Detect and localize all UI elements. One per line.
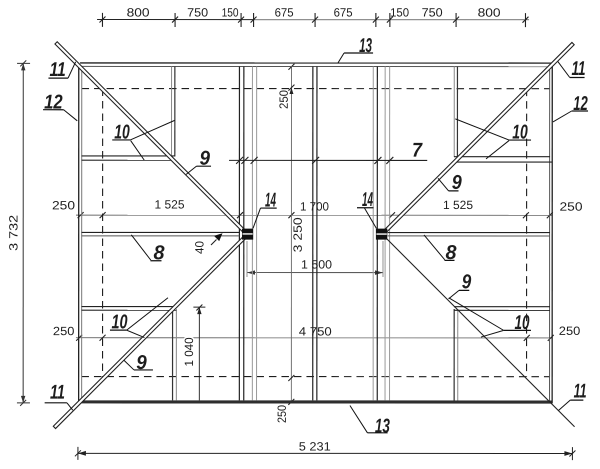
svg-text:4 750: 4 750: [299, 324, 332, 338]
svg-text:11: 11: [50, 59, 66, 81]
svg-text:750: 750: [422, 6, 443, 20]
svg-text:800: 800: [127, 5, 150, 19]
svg-text:40: 40: [192, 241, 206, 254]
svg-text:10: 10: [114, 122, 130, 144]
svg-text:13: 13: [375, 416, 390, 438]
svg-text:9: 9: [462, 271, 472, 293]
svg-text:7: 7: [412, 140, 423, 162]
svg-text:14: 14: [265, 190, 276, 212]
svg-text:8: 8: [153, 242, 165, 264]
svg-text:5 231: 5 231: [299, 439, 331, 453]
svg-text:12: 12: [44, 92, 63, 114]
svg-text:250: 250: [560, 200, 583, 214]
svg-text:9: 9: [199, 148, 210, 170]
svg-text:14: 14: [362, 189, 373, 211]
svg-text:10: 10: [512, 121, 528, 143]
svg-text:10: 10: [111, 311, 127, 333]
svg-text:675: 675: [275, 5, 294, 19]
svg-text:1 700: 1 700: [300, 200, 329, 214]
svg-text:9: 9: [452, 172, 463, 194]
svg-text:11: 11: [50, 382, 65, 404]
svg-text:9: 9: [136, 352, 147, 374]
svg-text:1 525: 1 525: [155, 197, 185, 211]
svg-text:8: 8: [445, 242, 457, 264]
svg-text:12: 12: [573, 93, 588, 115]
svg-text:250: 250: [559, 324, 581, 338]
svg-text:750: 750: [187, 5, 208, 19]
svg-text:250: 250: [277, 90, 291, 109]
svg-text:1 525: 1 525: [443, 198, 473, 212]
svg-text:3 250: 3 250: [291, 217, 305, 252]
svg-text:150: 150: [222, 5, 239, 19]
svg-text:13: 13: [359, 35, 372, 57]
svg-text:150: 150: [390, 6, 409, 20]
svg-text:11: 11: [572, 58, 586, 80]
svg-text:675: 675: [334, 6, 353, 20]
svg-text:10: 10: [514, 312, 529, 334]
svg-text:3 732: 3 732: [6, 215, 20, 251]
svg-text:1 040: 1 040: [182, 337, 196, 366]
svg-text:250: 250: [275, 405, 289, 423]
svg-text:250: 250: [52, 198, 75, 212]
svg-text:11: 11: [574, 380, 587, 402]
svg-text:800: 800: [478, 6, 501, 20]
svg-text:250: 250: [53, 324, 75, 338]
